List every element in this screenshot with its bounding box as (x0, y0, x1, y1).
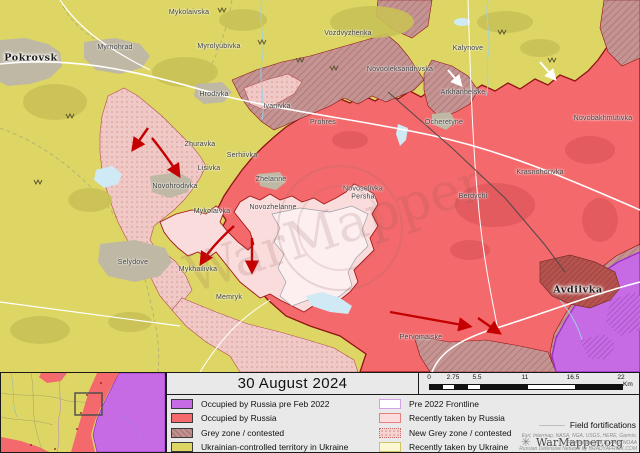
map-date-title: 30 August 2024 (238, 375, 348, 392)
legend-label: New Grey zone / contested (409, 428, 512, 438)
inset-locator-map (0, 372, 166, 453)
legend-swatch (171, 413, 193, 423)
legend-item: Ukrainian-controlled territory in Ukrain… (171, 441, 348, 453)
legend-swatch (171, 428, 193, 438)
map-svg: WarMapper (0, 0, 640, 372)
legend-item: Occupied by Russia (171, 412, 277, 425)
legend-item: Recently taken by Russia (379, 412, 505, 425)
scalebar-bar (429, 384, 623, 390)
legend-swatch (379, 399, 401, 409)
legend-item: Pre 2022 Frontline (379, 397, 479, 410)
legend-label: Recently taken by Russia (409, 413, 505, 423)
legend-panel: 30 August 2024 02.755.51116.522 Km Occup… (166, 372, 640, 453)
legend-swatch (379, 428, 401, 438)
legend-label: Occupied by Russia pre Feb 2022 (201, 399, 330, 409)
legend-swatch (171, 442, 193, 452)
legend-item: Recently taken by Ukraine (379, 441, 508, 453)
attribution: Esri, Intermap, NASA, NGA, USGS, HERE, G… (519, 433, 637, 452)
scalebar-tick: 11 (522, 374, 529, 381)
legend-swatch (379, 442, 401, 452)
legend-item: Occupied by Russia pre Feb 2022 (171, 397, 330, 410)
legend-item: Grey zone / contested (171, 426, 284, 439)
title-box: 30 August 2024 (167, 373, 419, 395)
legend-swatch (171, 399, 193, 409)
legend-swatch (379, 413, 401, 423)
legend-label: Pre 2022 Frontline (409, 399, 479, 409)
scale-bar: 02.755.51116.522 Km (419, 373, 639, 395)
scalebar-tick: 2.75 (447, 374, 460, 381)
scalebar-ticks: 02.755.51116.522 (419, 374, 639, 382)
legend-columns: Occupied by Russia pre Feb 2022Occupied … (167, 395, 640, 453)
warmapper-screenshot: WarMapper PokrovskAvdiivkaMykolaivskaMyr… (0, 0, 640, 453)
legend-field-fortifications: Field fortifications (539, 420, 636, 430)
legend-label: Recently taken by Ukraine (409, 442, 508, 452)
scalebar-unit: Km (623, 381, 633, 388)
legend-item: New Grey zone / contested (379, 426, 512, 439)
fortification-line-symbol (539, 425, 565, 426)
scalebar-tick: 5.5 (472, 374, 481, 381)
scalebar-tick: 16.5 (567, 374, 580, 381)
legend-label: Ukrainian-controlled territory in Ukrain… (201, 442, 348, 452)
scalebar-tick: 22 (617, 374, 624, 381)
attribution-line: Esri, Intermap, NASA, NGA, USGS, HERE, G… (519, 433, 637, 439)
attribution-line: Russian Defensive Network by BRADYAFRICK… (519, 446, 637, 452)
scalebar-tick: 0 (427, 374, 431, 381)
legend-label: Occupied by Russia (201, 413, 277, 423)
map-canvas[interactable]: WarMapper PokrovskAvdiivkaMykolaivskaMyr… (0, 0, 640, 372)
legend-label: Grey zone / contested (201, 428, 284, 438)
